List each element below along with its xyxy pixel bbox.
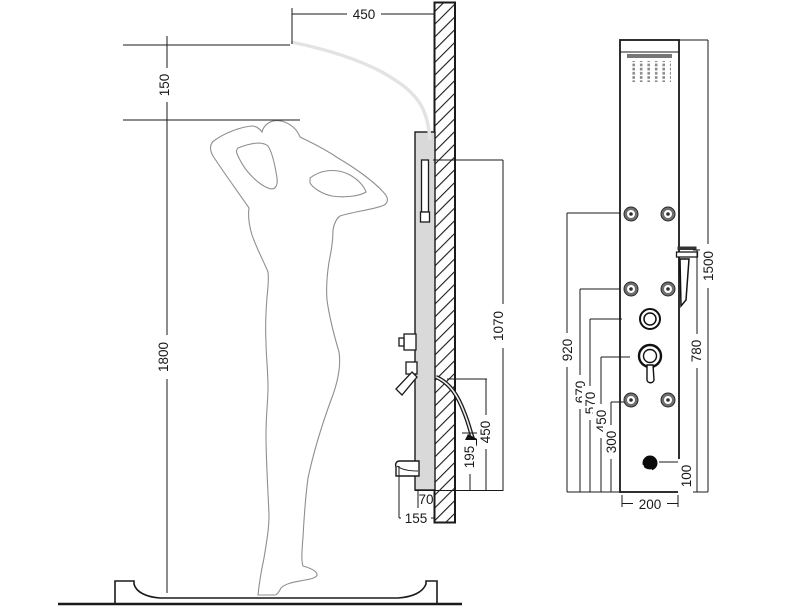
dim-label-low-jets-height: 300 [604,431,619,454]
dim-head-clearance: 150 [156,68,172,102]
dim-outlet-height: 195 [461,433,477,491]
shower-panel-technical-drawing: 450 150 1800 1070 [0,0,798,608]
body-jet [624,207,638,221]
shower-arm [291,42,430,140]
body-jet [624,282,638,296]
dim-label-panel-width: 200 [639,497,662,512]
dim-label-hose-height: 450 [478,421,493,444]
front-view: 920 670 570 450 300 [559,40,716,512]
panel-front-face [620,40,679,492]
mixer-side-profile [396,334,417,395]
figure-silhouette [211,121,388,595]
side-view: 450 150 1800 1070 [58,3,506,605]
dim-label-outlet-height: 195 [462,446,477,469]
body-jet [624,393,638,407]
figure-left-arm-opening [237,143,278,189]
figure-right-arm-opening [310,171,366,197]
wall-section [435,3,456,523]
dim-label-overall-height: 1800 [156,342,171,372]
dim-label-spout-height: 100 [679,465,694,488]
slide-rail [421,160,430,222]
body-jet [661,282,675,296]
dim-label-arm-reach: 450 [353,7,376,22]
dim-overall-height: 1800 [155,335,171,379]
body-jet [661,207,675,221]
overhead-shower-bar [627,54,672,58]
shower-tray [115,581,437,603]
dim-panel-depth: 70 [418,492,433,507]
dim-label-panel-height: 1500 [701,251,716,281]
body-jet [661,393,675,407]
dim-label-top-jets-height: 920 [560,339,575,362]
dim-label-hand-shower-height: 780 [689,340,704,363]
dim-panel-width: 200 [622,495,678,512]
diverter-knob [640,309,660,329]
bottom-knob [643,456,658,471]
drawing-canvas: 450 150 1800 1070 [0,0,798,608]
figure-outline [211,121,388,595]
overhead-shower-nozzles [629,61,671,82]
dim-arm-reach: 450 [292,6,435,44]
dim-label-panel-depth: 70 [418,492,433,507]
dim-label-head-clearance: 150 [157,74,172,97]
dim-label-spout-projection: 155 [405,511,428,526]
dim-label-rail-top-height: 1070 [491,311,506,341]
